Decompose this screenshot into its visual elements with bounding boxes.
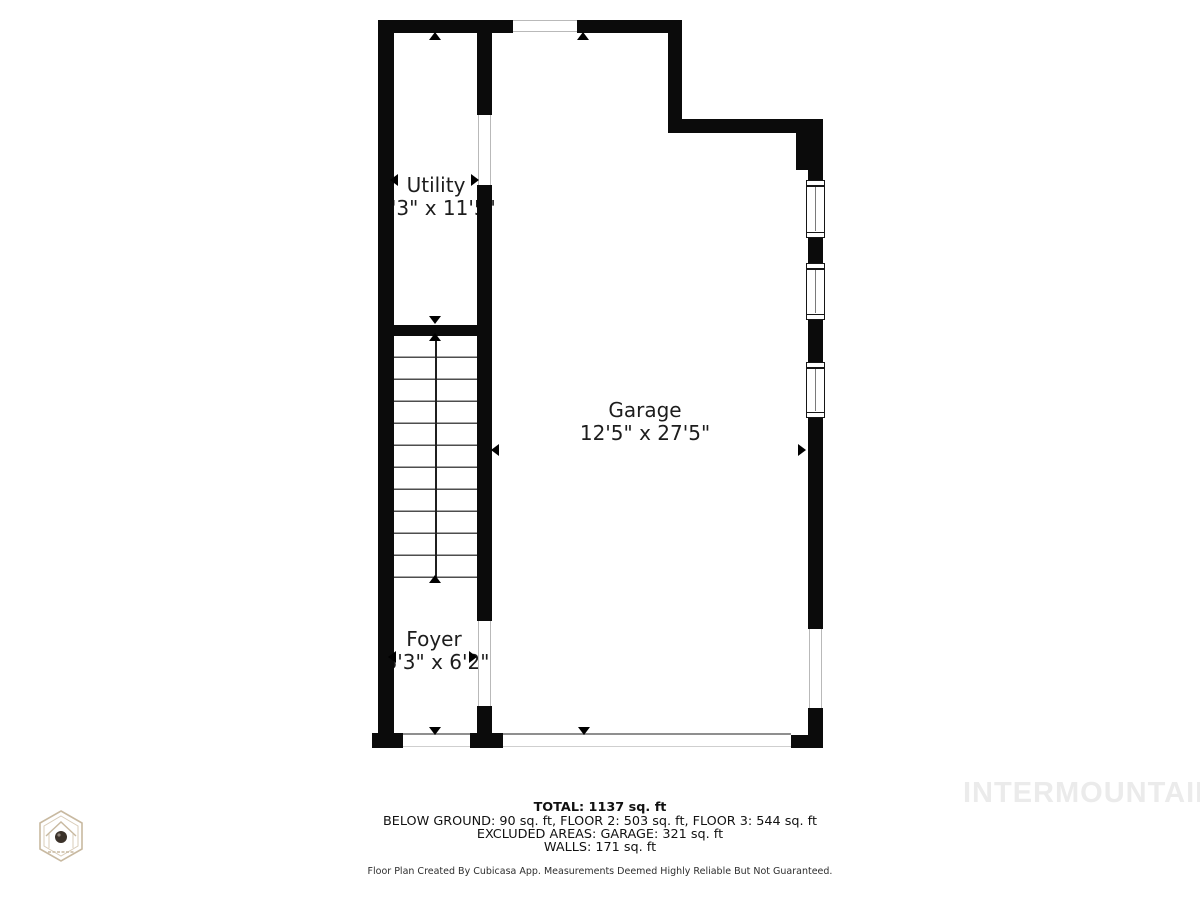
window-icon (806, 362, 825, 418)
wall-middle-low (477, 706, 492, 735)
wall-top-a (378, 20, 513, 33)
garage-height-arrow-top-icon (577, 32, 589, 40)
wall-middle-foot (470, 733, 503, 748)
utility-height-arrow-top-icon (429, 32, 441, 40)
disclaimer-text: Floor Plan Created By Cubicasa App. Meas… (0, 866, 1200, 877)
utility-width-arrow-right-icon (471, 174, 479, 186)
utility-width-arrow-left-icon (390, 174, 398, 186)
wall-right-foot (791, 735, 823, 748)
garage-height-arrow-bottom-icon (578, 727, 590, 735)
wall-step (668, 119, 823, 133)
garage-room-label: Garage (608, 399, 681, 421)
wall-left-foot (372, 733, 403, 748)
door-jamb (490, 115, 491, 185)
wall-right-4 (808, 418, 823, 629)
stairs-arrow-bottom-icon (429, 575, 441, 583)
garage-door-threshold (503, 733, 791, 735)
floors-area-text: BELOW GROUND: 90 sq. ft, FLOOR 2: 503 sq… (0, 815, 1200, 828)
walls-area-text: WALLS: 171 sq. ft (0, 841, 1200, 854)
utility-room-label: Utility (407, 174, 466, 196)
door-jamb (809, 629, 810, 708)
door-jamb (490, 621, 491, 706)
garage-door-threshold-outer (503, 746, 791, 747)
stairs-direction-line (435, 338, 437, 581)
wall-middle-top (477, 20, 492, 115)
window-icon (806, 263, 825, 320)
wall-middle-main (477, 185, 492, 621)
wall-upper-right (668, 20, 682, 133)
wall-left (378, 20, 394, 748)
garage-room-dims: 12'5" x 27'5" (580, 422, 710, 444)
area-summary: TOTAL: 1137 sq. ft BELOW GROUND: 90 sq. … (0, 801, 1200, 854)
foyer-room-label: Foyer (406, 628, 461, 650)
door-jamb (513, 31, 577, 32)
door-jamb (513, 20, 577, 21)
foyer-width-arrow-left-icon (388, 651, 396, 663)
door-jamb (821, 629, 822, 708)
stairs-arrow-top-icon (429, 333, 441, 341)
total-area-text: TOTAL: 1137 sq. ft (0, 801, 1200, 815)
wall-right-2 (808, 238, 823, 263)
utility-height-arrow-bottom-icon (429, 316, 441, 324)
foyer-width-arrow-right-icon (469, 651, 477, 663)
window-icon (806, 180, 825, 238)
foyer-height-arrow-bottom-icon (429, 727, 441, 735)
garage-width-arrow-right-icon (798, 444, 806, 456)
wall-top-b (577, 20, 682, 33)
floor-plan-page: INTERMOUNTAIN Utility 3'3" x 11'5" Garag… (0, 0, 1200, 900)
wall-right-1 (808, 133, 823, 180)
brand-logo-icon (38, 810, 84, 866)
garage-width-arrow-left-icon (491, 444, 499, 456)
door-jamb (478, 621, 479, 706)
foyer-door-threshold-outer (403, 746, 470, 747)
wall-right-3 (808, 320, 823, 362)
excluded-area-text: EXCLUDED AREAS: GARAGE: 321 sq. ft (0, 828, 1200, 841)
